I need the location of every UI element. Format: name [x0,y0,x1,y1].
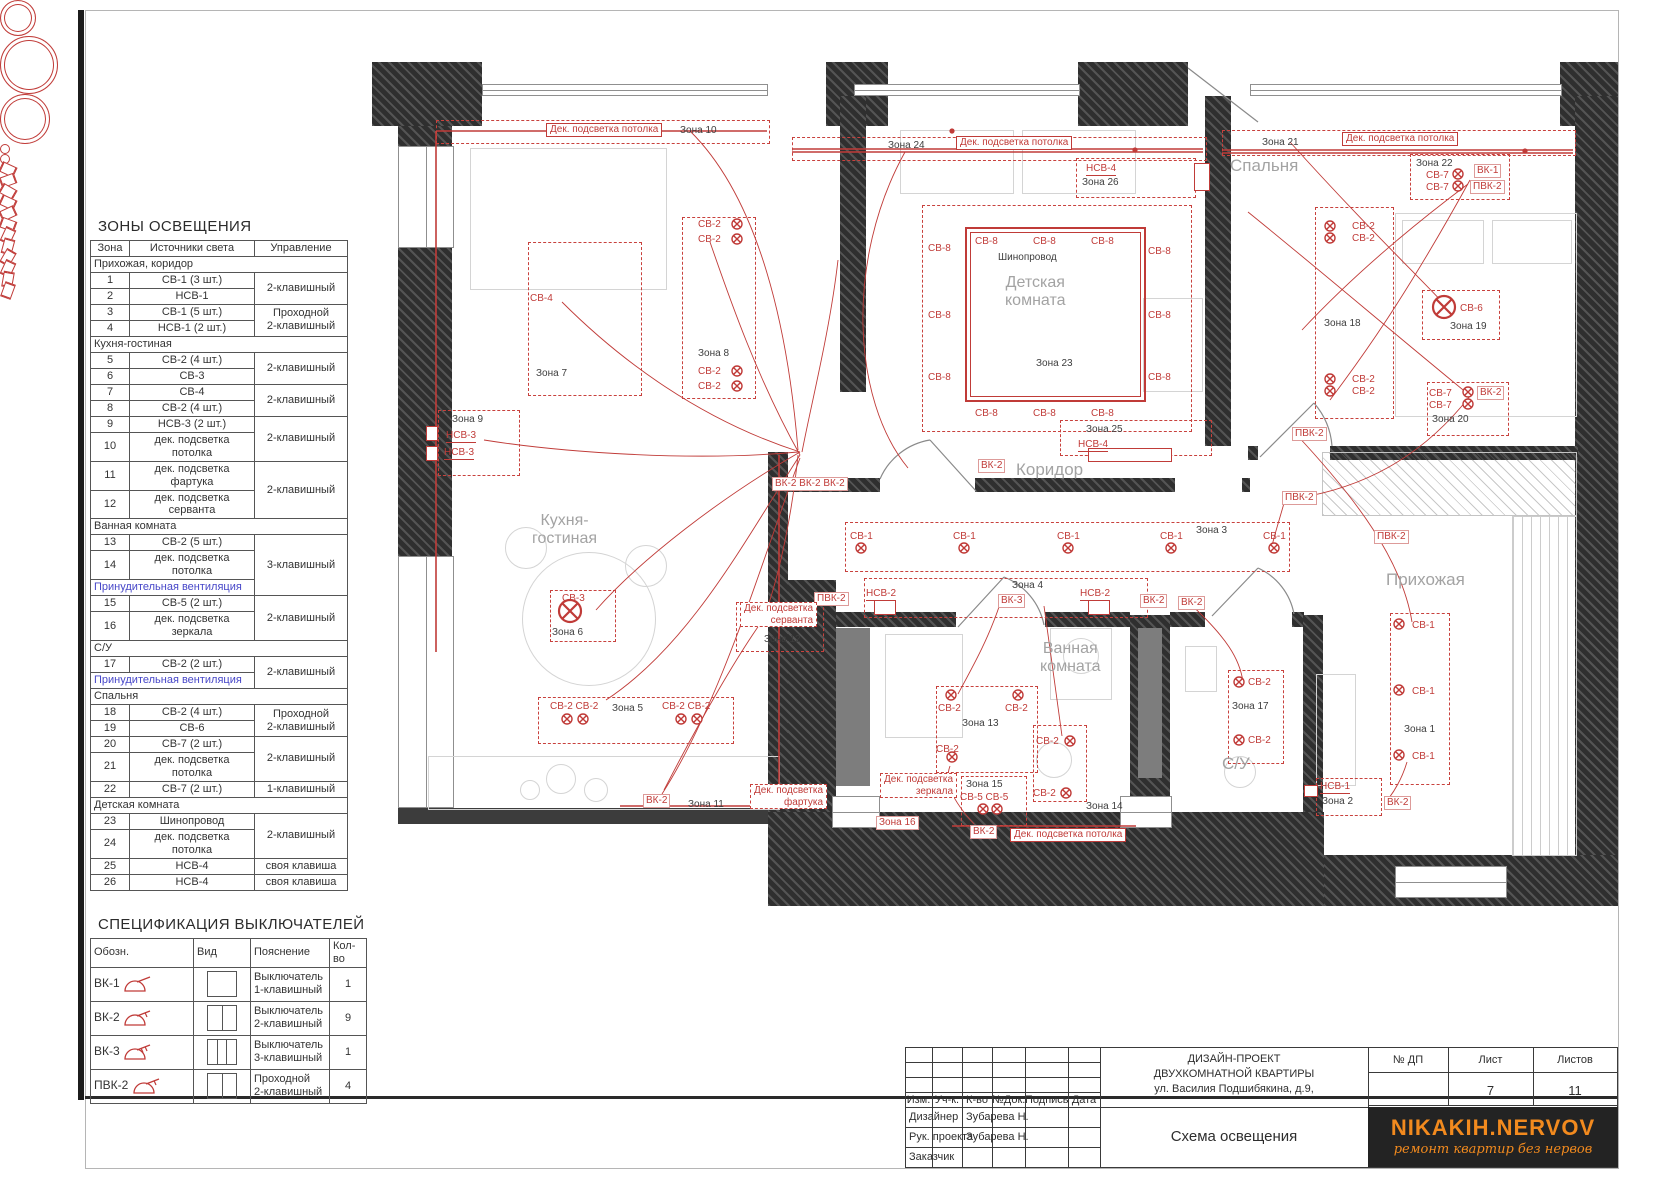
switch-table-header: Вид [194,939,251,968]
plan-label: СВ-1 [1412,751,1435,763]
plan-line [484,440,798,456]
plan-label: СВ-1 [1412,686,1435,698]
zones-table-cell: СВ-7 (2 шт.) [130,781,255,797]
zones-table-cell: 21 [91,752,130,781]
room-label: Кухня- гостиная [532,512,597,549]
zones-table-cell: 2-клавишный [255,461,348,519]
room-label: Спальня [1230,156,1298,176]
plan-label: СВ-2 [1248,735,1271,747]
zones-table-cell: СВ-6 [130,721,255,737]
zones-table-cell: 24 [91,829,130,858]
switch-desc-cell: Проходной 2-клавишный [251,1069,330,1103]
spotlight-icon [1164,541,1178,555]
zones-table-cell: Ванная комната [91,519,348,535]
plan-label: СВ-2 СВ-2 [662,701,710,713]
spotlight-icon [1011,688,1025,702]
plan-label: Зона 4 [1012,580,1043,592]
wall-segment [1322,452,1577,516]
wall-light-icon [1088,600,1110,615]
furniture-rect [1316,674,1356,786]
switch-label: ВК-2 [978,459,1005,473]
zones-table-grid: ЗонаИсточники светаУправлениеПрихожая, к… [90,240,348,891]
switch-label: ПВК-2 [1282,491,1317,505]
plan-label: СВ-3 [562,593,585,605]
switch-label: ВК-2 ВК-2 ВК-2 [772,477,848,491]
switch-label: ВК-1 [1474,164,1501,178]
furniture-circle [520,780,540,800]
plan-label: СВ-8 [1091,408,1114,420]
wall-light-icon [1304,785,1318,797]
switch-view-icon [207,1073,237,1099]
spotlight-icon [730,379,744,393]
plan-label: СВ-2 [1352,221,1375,233]
plan-label: Зона 18 [1324,318,1361,330]
plan-label: Зона 19 [1450,321,1487,333]
plan-label: Зона 21 [1262,137,1299,149]
spotlight-icon [1059,786,1073,800]
spotlight-icon [854,541,868,555]
zones-table-cell: дек. подсветка серванта [130,490,255,519]
spotlight-icon [1323,384,1337,398]
zones-table-cell: 7 [91,384,130,400]
zones-table-cell: дек. подсветка потолка [130,829,255,858]
zones-table-cell: НСВ-3 (2 шт.) [130,416,255,432]
zones-table-cell: СВ-7 (2 шт.) [130,737,255,753]
zones-table-cell: Кухня-гостиная [91,336,348,352]
plan-label: Дек. подсветка потолка [1010,828,1126,842]
plan-label: НСВ-4 [1078,439,1108,452]
spotlight-icon [576,712,590,726]
plan-label: СВ-2 [1352,233,1375,245]
plan-label: СВ-5 СВ-5 [960,792,1008,804]
switch-view-cell [194,1069,251,1103]
switch-label: ПВК-2 [1470,180,1505,194]
zones-table-title: ЗОНЫ ОСВЕЩЕНИЯ [98,218,251,235]
zones-table-cell: 2-клавишный [255,737,348,782]
plan-label: Зона 22 [1416,158,1453,170]
plan-label: Зона 17 [1232,701,1269,713]
zones-table-cell: Спальня [91,689,348,705]
switch-label: ВК-2 [1140,594,1167,608]
zones-table-cell: 2-клавишный [255,384,348,416]
switch-code-cell: ПВК-2 [91,1069,194,1103]
spotlight-icon [1063,734,1077,748]
switch-key [208,1006,222,1030]
switch-key [222,1006,237,1030]
zones-table-cell: 2-клавишный [255,272,348,304]
plan-label: СВ-1 [1057,531,1080,543]
furniture-rect [1402,220,1484,264]
furniture-circle [546,764,576,794]
plan-label: Зона 11 [688,799,724,811]
switch-key [217,1040,227,1064]
spotlight-icon [730,364,744,378]
switch-spec-table: Обозн.ВидПояснениеКол- воВК-1 Выключател… [90,938,367,1104]
chandelier-ring [0,144,10,154]
zones-table-cell: 25 [91,858,130,874]
switch-desc-cell: Выключатель 3-клавишный [251,1035,330,1069]
wall-segment [398,246,452,556]
plan-label: СВ-8 [975,236,998,248]
switch-table-header: Пояснение [251,939,330,968]
switch-label: ВК-2 [970,825,997,839]
zones-table-cell: 14 [91,551,130,580]
plan-label: Дек. подсветка потолка [956,136,1072,150]
plan-label: СВ-1 [1160,531,1183,543]
zones-table-cell: дек. подсветка потолка [130,551,255,580]
furniture-circle [625,545,667,587]
switch-code: ВК-2 [94,1010,123,1024]
zones-table-cell: 4 [91,320,130,336]
plan-label: СВ-7 [1426,182,1449,194]
zones-table-cell: 1 [91,272,130,288]
zones-table: ЗонаИсточники светаУправлениеПрихожая, к… [90,240,348,891]
plan-line [1212,568,1294,616]
wall-segment [975,478,1175,492]
switch-view-icon [207,1039,237,1065]
spotlight-icon [674,712,688,726]
spotlight-icon [944,688,958,702]
zones-table-cell: С/У [91,641,348,657]
furniture-circle [584,778,608,802]
wall-segment [836,628,870,786]
switch-key [208,1074,222,1098]
switch-qty-cell: 9 [330,1001,367,1035]
switch-desc-cell: Выключатель 1-клавишный [251,967,330,1001]
wall-light-icon [426,426,438,441]
spotlight-icon [1392,683,1406,697]
window [482,84,768,96]
plan-label: Зона 24 [888,140,925,152]
zones-table-cell: НСВ-1 [130,288,255,304]
zones-table-cell: Проходной 2-клавишный [255,304,348,336]
plan-label: НСВ-2 [1080,588,1110,601]
room-label: С/У [1222,754,1250,774]
switch-code: ВК-3 [94,1044,123,1058]
plan-label: СВ-2 [1248,677,1271,689]
zones-table-cell: СВ-2 (4 шт.) [130,400,255,416]
plan-label: Зона 20 [1432,414,1469,426]
switch-view-cell [194,967,251,1001]
plan-label: Дек. подсветка потолка [546,123,662,137]
wall-segment [1242,478,1250,492]
plan-label: НСВ-4 [1086,163,1116,176]
switch-desc-cell: Выключатель 2-клавишный [251,1001,330,1035]
spotlight-icon [1061,541,1075,555]
plan-label: Зона 5 [612,703,643,715]
zones-table-header: Источники света [130,241,255,257]
zones-table-cell: дек. подсветка фартука [130,461,255,490]
switch-label: ВК-2 [643,794,670,808]
plan-label: Дек. подсветка фартука [750,784,827,809]
plan-label: СВ-2 [698,366,721,378]
wall-segment [1575,96,1618,906]
spotlight-icon [1451,179,1465,193]
pendant-light-icon [1431,294,1457,320]
zones-table-cell: 17 [91,657,130,673]
switch-symbol-icon [123,1009,153,1027]
zones-table-cell: 10 [91,432,130,461]
plan-label: НСВ-3 [444,447,474,460]
plan-label: СВ-2 [1005,703,1028,715]
plan-label: СВ-1 [953,531,976,543]
switch-label: ВК-2 [1384,796,1411,810]
window [398,146,454,248]
chandelier-ring [0,94,50,144]
plan-label: СВ-8 [1148,310,1171,322]
zones-table-cell: 9 [91,416,130,432]
switch-key [208,972,236,996]
plan-label: СВ-7 [1429,400,1452,412]
plan-label: СВ-2 [698,219,721,231]
zones-table-cell: своя клавиша [255,874,348,890]
chandelier-ring [0,0,36,36]
plan-label: СВ-8 [1148,246,1171,258]
zones-table-cell: 2-клавишный [255,352,348,384]
zones-table-cell: 11 [91,461,130,490]
switch-qty-cell: 4 [330,1069,367,1103]
switch-key [226,1040,236,1064]
room-label: Детская комната [1005,274,1066,311]
zones-table-cell: СВ-5 (2 шт.) [130,596,255,612]
zones-table-cell: Принудительная вентиляция [91,580,255,596]
plan-label: Зона 3 [1196,525,1227,537]
plan-label: Зона 12 [764,634,801,646]
wall-light-icon [1194,163,1210,191]
switch-code-cell: ВК-2 [91,1001,194,1035]
zones-table-cell: дек. подсветка потолка [130,752,255,781]
zones-table-header: Управление [255,241,348,257]
plan-label: СВ-2 [698,381,721,393]
switch-key [208,1040,217,1064]
window [854,84,1080,96]
zones-table-cell: 22 [91,781,130,797]
zones-table-cell: СВ-2 (4 шт.) [130,352,255,368]
switch-label: Зона 16 [876,816,919,830]
plan-label: СВ-8 [975,408,998,420]
plan-label: Зона 7 [536,368,567,380]
plan-label: СВ-1 [850,531,873,543]
zones-table-cell: Принудительная вентиляция [91,673,255,689]
plan-label: СВ-8 [928,243,951,255]
zones-table-cell: 19 [91,721,130,737]
plan-label: СВ-4 [530,293,553,305]
plan-label: Зона 8 [698,348,729,360]
plan-label: СВ-2 [1352,386,1375,398]
plan-label: СВ-2 [1033,788,1056,800]
wall-light-icon [426,446,438,461]
zones-table-cell: СВ-2 (5 шт.) [130,535,255,551]
plan-label: СВ-8 [1148,372,1171,384]
zones-table-cell: НСВ-1 (2 шт.) [130,320,255,336]
plan-label: Зона 26 [1082,177,1119,189]
plan-label: СВ-8 [1033,408,1056,420]
zones-table-cell: 5 [91,352,130,368]
plan-label: Зона 25 [1086,424,1123,436]
plan-label: СВ-8 [928,372,951,384]
spotlight-icon [1267,541,1281,555]
zones-table-cell: СВ-2 (4 шт.) [130,705,255,721]
plan-label: НСВ-2 [866,588,896,601]
spotlight-icon [730,232,744,246]
zones-table-cell: 18 [91,705,130,721]
zones-table-cell: 1-клавишный [255,781,348,797]
plan-label: Зона 2 [1322,796,1353,808]
switch-code: ВК-1 [94,976,123,990]
plan-label: СВ-2 [936,744,959,756]
zones-table-cell: СВ-3 [130,368,255,384]
wall-segment [1512,516,1577,856]
switch-label: ВК-2 [1477,386,1504,400]
wall-segment [1138,628,1162,778]
spotlight-icon [1232,675,1246,689]
switch-view-cell [194,1035,251,1069]
switch-symbol-icon [123,975,153,993]
zones-table-cell: дек. подсветка потолка [130,432,255,461]
switch-view-cell [194,1001,251,1035]
spotlight-icon [690,712,704,726]
wall-segment [1248,446,1258,460]
plan-label: Дек. подсветка зеркала [880,773,957,798]
switch-code-cell: ВК-3 [91,1035,194,1069]
wall-segment [1170,612,1205,627]
plan-label: Дек. подсветка серванта [740,602,817,627]
plan-line [802,260,838,452]
zones-table-cell: НСВ-4 [130,874,255,890]
switch-qty-cell: 1 [330,967,367,1001]
window [1120,796,1172,828]
zones-table-cell: своя клавиша [255,858,348,874]
plan-label: СВ-7 [1429,388,1452,400]
plan-label: СВ-2 [938,703,961,715]
window [832,796,880,828]
plan-label: Зона 9 [452,414,483,426]
wall-light-icon [874,600,896,615]
switch-table-header: Обозн. [91,939,194,968]
zones-table-cell: 23 [91,813,130,829]
window [1250,84,1562,96]
switch-code-cell: ВК-1 [91,967,194,1001]
studio-logo-title: NIKAKIH.NERVOV [1368,1115,1618,1141]
furniture-rect [1492,220,1572,264]
zones-table-cell: 2-клавишный [255,596,348,641]
plan-label: СВ-2 [698,234,721,246]
switch-label: ПВК-2 [814,592,849,606]
switch-view-icon [207,1005,237,1031]
switch-label: ПВК-2 [1374,530,1409,544]
zones-table-cell: 13 [91,535,130,551]
chandelier-ring [0,36,58,94]
spotlight-icon [1392,617,1406,631]
room-label: Коридор [1016,460,1083,480]
plan-label: СВ-2 СВ-2 [550,701,598,713]
plan-line [880,440,976,491]
plan-label: Зона 6 [552,627,583,639]
zones-table-cell: 6 [91,368,130,384]
switch-qty-cell: 1 [330,1035,367,1069]
studio-logo-tagline: ремонт квартир без нервов [1368,1142,1618,1157]
plan-label: Зона 15 [966,779,1003,791]
spotlight-icon [1232,733,1246,747]
zones-table-cell: СВ-2 (2 шт.) [130,657,255,673]
plan-label: СВ-8 [1033,236,1056,248]
plan-label: НСВ-3 [446,430,476,443]
zones-table-cell: Детская комната [91,797,348,813]
zones-table-cell: Проходной 2-клавишный [255,705,348,737]
zones-table-cell: СВ-1 (5 шт.) [130,304,255,320]
zones-table-cell: Прихожая, коридор [91,256,348,272]
zones-table-cell: НСВ-4 [130,858,255,874]
plan-label: СВ-2 [1036,736,1059,748]
plan-label: СВ-8 [928,310,951,322]
zones-table-cell: 12 [91,490,130,519]
zones-table-cell: 26 [91,874,130,890]
plan-label: СВ-2 [1352,374,1375,386]
zones-table-cell: 2-клавишный [255,813,348,858]
switch-label: ВК-3 [998,594,1025,608]
plan-label: Дек. подсветка потолка [1342,132,1458,146]
switch-symbol-icon [123,1043,153,1061]
plan-label: Зона 13 [962,718,999,730]
zones-table-cell: дек. подсветка зеркала [130,612,255,641]
room-label: Прихожая [1386,570,1465,590]
studio-logo: NIKAKIH.NERVOV ремонт квартир без нервов [1368,1107,1618,1167]
zones-table-cell: 2-клавишный [255,657,348,689]
zones-table-cell: 2-клавишный [255,416,348,461]
zones-table-cell: СВ-4 [130,384,255,400]
plan-label: Зона 23 [1036,358,1073,370]
wall-segment [372,62,482,126]
wall-segment [1078,62,1188,126]
plan-label: Зона 14 [1086,801,1123,813]
zones-table-cell: 3-клавишный [255,535,348,596]
zones-table-cell: 3 [91,304,130,320]
furniture-rect [1185,646,1217,692]
spotlight-icon [957,541,971,555]
zones-table-cell: 8 [91,400,130,416]
plan-label: Зона 1 [1404,724,1435,736]
spotlight-icon [560,712,574,726]
plan-label: СВ-1 [1263,531,1286,543]
switch-symbol-icon [132,1077,162,1095]
switch-code: ПВК-2 [94,1078,132,1092]
spotlight-icon [976,802,990,816]
switch-label: ВК-2 [1178,596,1205,610]
plan-label: СВ-6 [1460,303,1483,315]
spotlight-icon [1323,231,1337,245]
zones-table-cell: 2 [91,288,130,304]
spotlight-icon [990,802,1004,816]
plan-label: СВ-8 [1091,236,1114,248]
zones-table-cell: СВ-1 (3 шт.) [130,272,255,288]
spotlight-icon [1461,397,1475,411]
switch-view-icon [207,971,237,997]
plan-label: СВ-1 [1412,620,1435,632]
plan-label: НСВ-1 [1320,781,1350,794]
spotlight-icon [730,217,744,231]
switch-spec-title: СПЕЦИФИКАЦИЯ ВЫКЛЮЧАТЕЛЕЙ [98,916,364,933]
plan-label: Зона 10 [680,125,717,137]
plan-line [863,152,908,468]
zones-table-cell: 16 [91,612,130,641]
switch-label: ПВК-2 [1292,427,1327,441]
switch-key [222,1074,237,1098]
switch-table-header: Кол- во [330,939,367,968]
window [1395,866,1507,898]
spotlight-icon [1392,748,1406,762]
zones-table-cell: Шинопровод [130,813,255,829]
room-label: Ванная комната [1040,640,1101,677]
